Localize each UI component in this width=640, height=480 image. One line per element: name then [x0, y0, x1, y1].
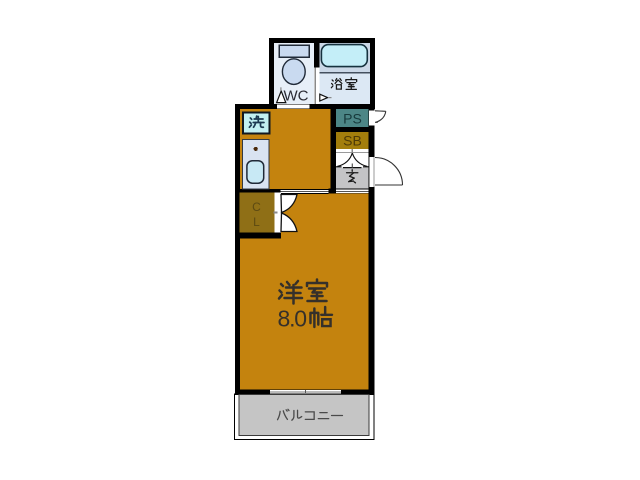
svg-text:8.0: 8.0 [278, 306, 307, 332]
svg-text:L: L [253, 215, 260, 229]
svg-text:WC: WC [284, 88, 309, 105]
svg-text:SB: SB [343, 133, 362, 149]
svg-text:C: C [252, 200, 261, 214]
svg-text:PS: PS [343, 111, 362, 127]
